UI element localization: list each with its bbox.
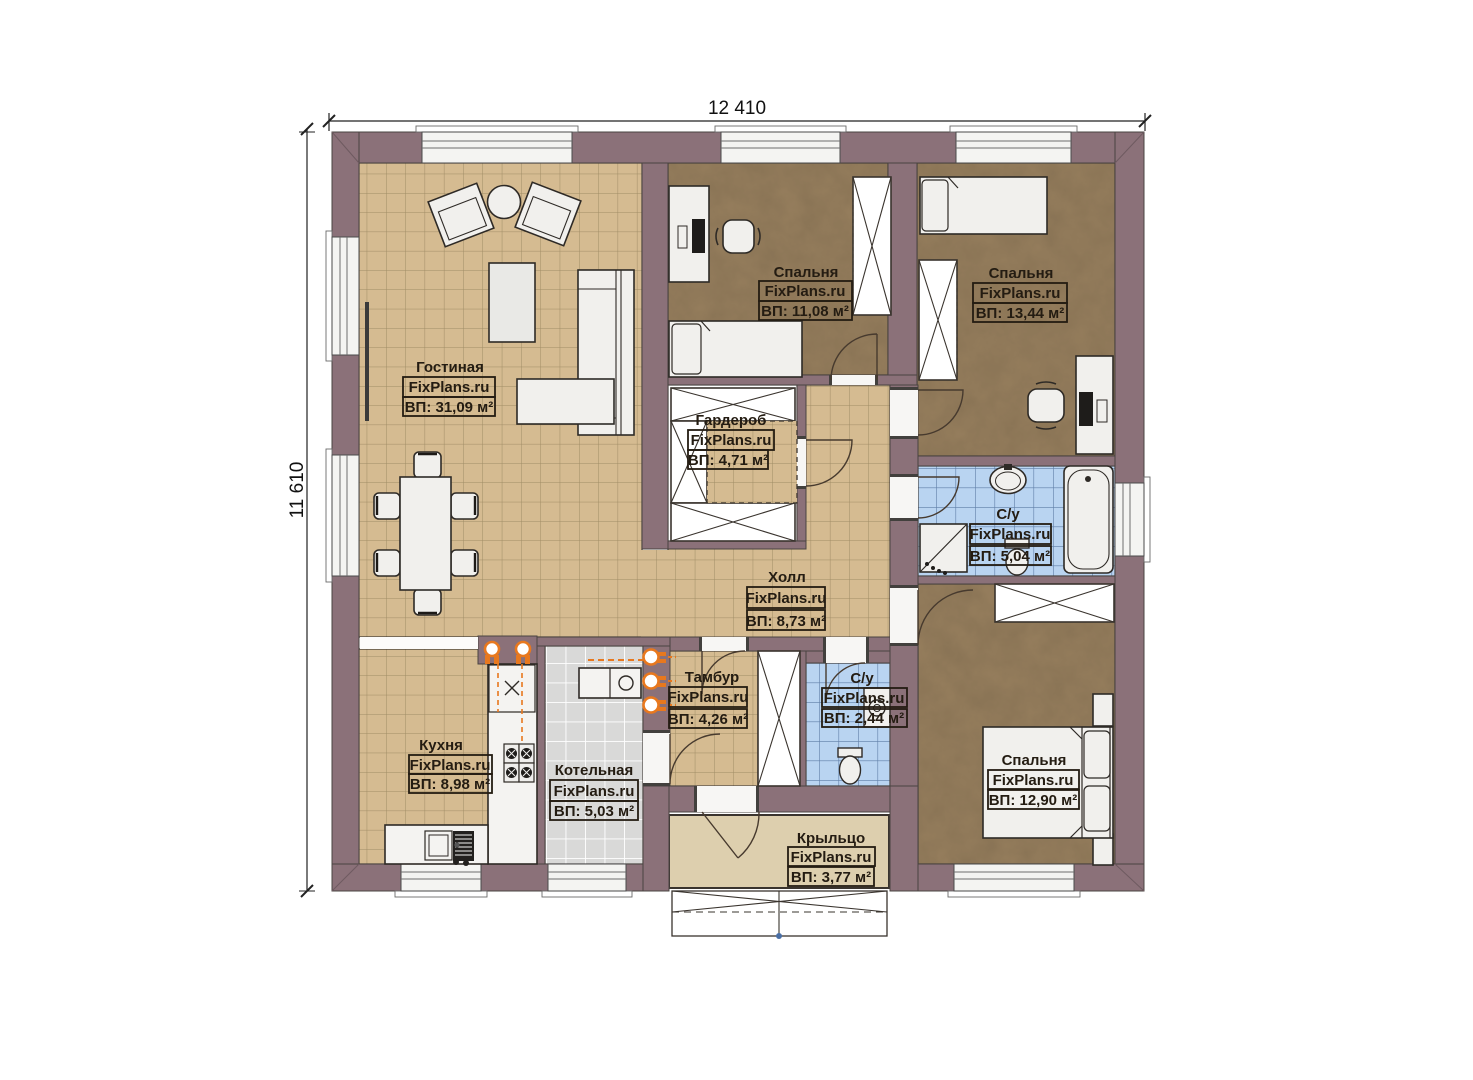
svg-text:FixPlans.ru: FixPlans.ru — [410, 757, 491, 774]
svg-text:ВП: 8,98 м²: ВП: 8,98 м² — [410, 776, 490, 793]
svg-text:Гардероб: Гардероб — [696, 412, 767, 429]
svg-text:FixPlans.ru: FixPlans.ru — [746, 590, 827, 607]
svg-text:Спальня: Спальня — [1002, 752, 1067, 769]
svg-text:Кухня: Кухня — [419, 737, 463, 754]
svg-text:ВП: 12,90 м²: ВП: 12,90 м² — [989, 792, 1078, 809]
svg-text:Крыльцо: Крыльцо — [797, 830, 865, 847]
svg-text:Холл: Холл — [768, 569, 806, 586]
svg-text:Котельная: Котельная — [555, 762, 634, 779]
svg-text:ВП: 3,77 м²: ВП: 3,77 м² — [791, 869, 871, 886]
svg-text:ВП: 2,44 м²: ВП: 2,44 м² — [824, 710, 904, 727]
svg-text:ВП: 4,26 м²: ВП: 4,26 м² — [668, 711, 748, 728]
svg-text:Тамбур: Тамбур — [685, 669, 739, 686]
svg-text:ВП: 4,71 м²: ВП: 4,71 м² — [688, 452, 768, 469]
svg-text:Спальня: Спальня — [774, 264, 839, 281]
svg-text:ВП: 8,73 м²: ВП: 8,73 м² — [746, 613, 826, 630]
svg-text:FixPlans.ru: FixPlans.ru — [970, 526, 1051, 543]
svg-text:FixPlans.ru: FixPlans.ru — [409, 379, 490, 396]
svg-text:ВП: 5,03 м²: ВП: 5,03 м² — [554, 803, 634, 820]
svg-text:FixPlans.ru: FixPlans.ru — [824, 690, 905, 707]
svg-text:12 410: 12 410 — [708, 98, 766, 119]
svg-text:С/у: С/у — [850, 670, 874, 687]
svg-text:FixPlans.ru: FixPlans.ru — [554, 783, 635, 800]
svg-text:С/у: С/у — [996, 506, 1020, 523]
svg-text:ВП: 5,04 м²: ВП: 5,04 м² — [970, 548, 1050, 565]
svg-text:FixPlans.ru: FixPlans.ru — [791, 849, 872, 866]
svg-text:FixPlans.ru: FixPlans.ru — [668, 689, 749, 706]
svg-text:FixPlans.ru: FixPlans.ru — [691, 432, 772, 449]
svg-text:ВП: 31,09 м²: ВП: 31,09 м² — [405, 399, 494, 416]
svg-text:FixPlans.ru: FixPlans.ru — [765, 283, 846, 300]
svg-text:Гостиная: Гостиная — [416, 359, 484, 376]
svg-text:FixPlans.ru: FixPlans.ru — [993, 772, 1074, 789]
svg-text:ВП: 13,44 м²: ВП: 13,44 м² — [976, 305, 1065, 322]
svg-text:ВП: 11,08 м²: ВП: 11,08 м² — [761, 303, 849, 320]
svg-text:FixPlans.ru: FixPlans.ru — [980, 285, 1061, 302]
svg-text:Спальня: Спальня — [989, 265, 1054, 282]
svg-text:11 610: 11 610 — [287, 462, 308, 519]
